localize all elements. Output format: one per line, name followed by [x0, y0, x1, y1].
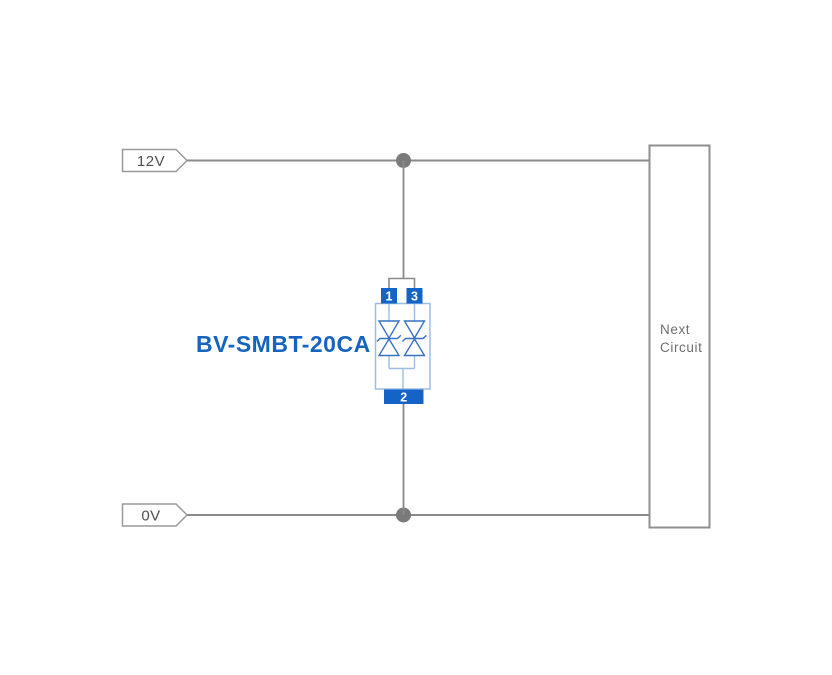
pin-split-wire — [389, 279, 415, 290]
circuit-schematic-page: 12V 0V — [0, 0, 832, 675]
next-circuit-block: Next Circuit — [650, 146, 710, 528]
rail-0v: 0V — [123, 504, 650, 526]
next-circuit-label-line1: Next — [660, 322, 690, 337]
component-label: BV-SMBT-20CA — [196, 331, 371, 357]
tvs-pin-2-label: 2 — [400, 391, 407, 405]
tvs-pin-3-label: 3 — [411, 290, 418, 304]
tvs-pin-1-label: 1 — [386, 290, 393, 304]
next-circuit-label-line2: Circuit — [660, 340, 702, 355]
circuit-diagram: 12V 0V — [0, 0, 832, 675]
net-tag-0v-label: 0V — [141, 508, 160, 525]
net-tag-12v-label: 12V — [137, 153, 165, 170]
rail-12v: 12V — [123, 150, 650, 172]
tvs-component: 1 3 2 — [376, 288, 431, 405]
